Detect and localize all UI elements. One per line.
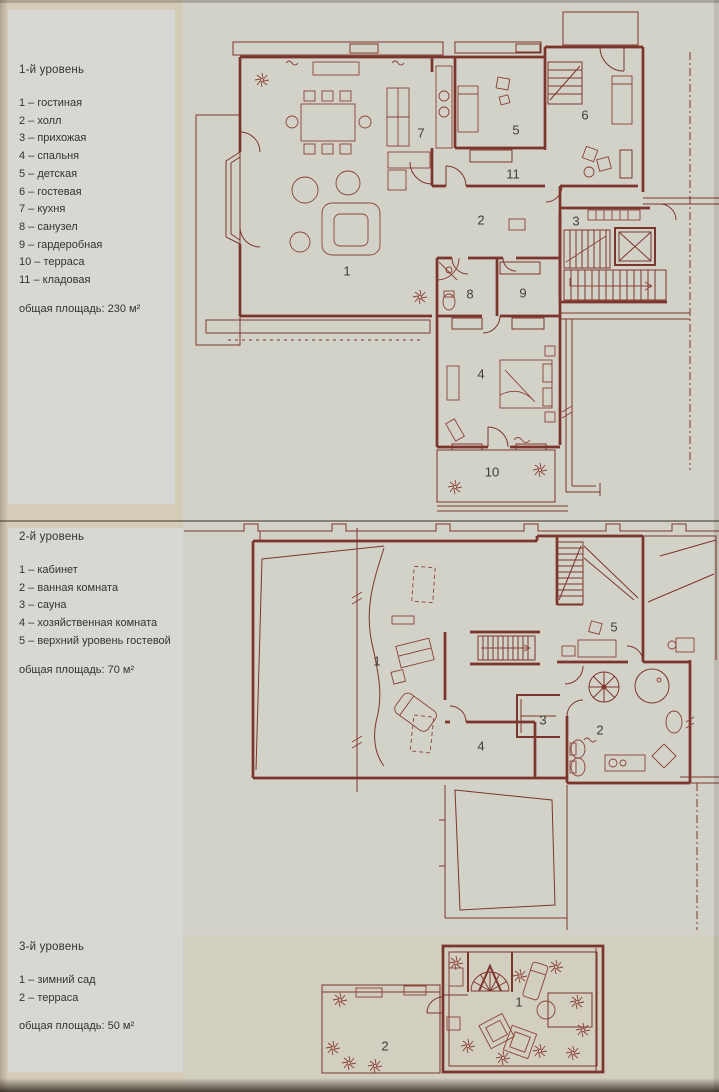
entrance-door [600, 47, 624, 71]
roof-outline [184, 524, 719, 541]
level-1-floor-plan [196, 12, 719, 511]
armchair [479, 1014, 514, 1049]
left-terrace-grid [196, 115, 240, 345]
room3-closet [588, 210, 640, 220]
bathroom2-fixtures [570, 669, 694, 776]
room-label: 11 [506, 167, 520, 182]
room-label: 6 [581, 108, 588, 123]
guest-upper-furniture [562, 621, 616, 657]
level-3-floor-plan [322, 946, 603, 1073]
door-arc [240, 132, 260, 247]
wardrobe [500, 262, 540, 274]
shower [437, 258, 459, 280]
plant-icon [449, 956, 463, 970]
bed [612, 76, 632, 124]
room6-furniture [582, 76, 632, 178]
bed [458, 86, 478, 132]
plant-icon [333, 993, 347, 1007]
room-label: 1 [343, 264, 350, 279]
armchair [336, 171, 360, 195]
spiral-stair-fan [468, 952, 512, 992]
hall-table [509, 219, 525, 230]
plant-icon [255, 73, 269, 87]
room-label: 4 [477, 739, 484, 754]
room-label: 5 [610, 620, 617, 635]
radiator-mark [514, 438, 530, 443]
living-room-furniture [255, 61, 427, 304]
elevator [615, 228, 655, 265]
void-slope-lines [256, 546, 384, 770]
plant-icon [448, 480, 462, 494]
level-2-floor-plan [184, 524, 719, 930]
room-label: 2 [381, 1039, 388, 1054]
plant-icon [326, 1041, 340, 1055]
room-label: 10 [485, 465, 499, 480]
plant-icon [368, 1059, 382, 1073]
lounge-chair [522, 961, 548, 1000]
bay-window [226, 152, 240, 244]
upper-stair [557, 542, 638, 605]
room-label: 2 [596, 723, 603, 738]
toilet [443, 294, 455, 310]
room-label: 4 [477, 367, 484, 382]
room-label: 2 [477, 213, 484, 228]
attic-room [643, 536, 716, 660]
page-edge-bottom [0, 1078, 719, 1092]
wardrobe [470, 150, 512, 162]
plant-icon [533, 463, 547, 477]
room-label: 9 [519, 286, 526, 301]
armchair [503, 1025, 536, 1058]
bathroom-fixtures [437, 258, 544, 329]
room-label: 1 [515, 995, 522, 1010]
mid-stair [445, 632, 540, 700]
sofa [322, 203, 380, 255]
roof-terrace-grid [563, 12, 638, 45]
room-label: 1 [373, 654, 380, 669]
sofa [578, 640, 616, 657]
room-label: 3 [572, 214, 579, 229]
dining-table [301, 104, 355, 141]
floor-plans-drawing [0, 0, 719, 1092]
garden-door [427, 995, 468, 1013]
floor-plan-page: 1-й уровень 1 – гостиная2 – холл3 – прих… [0, 0, 719, 1092]
study-furniture [385, 566, 439, 753]
bed [500, 360, 552, 408]
room-label: 7 [417, 126, 424, 141]
break-mark [562, 406, 572, 418]
round-table [537, 1001, 555, 1019]
wardrobe [620, 150, 632, 178]
chaise [392, 691, 438, 734]
bathtub [635, 669, 669, 703]
page-edge-top [0, 0, 719, 3]
plant-icon [342, 1056, 356, 1070]
sink [666, 711, 682, 733]
room-label: 8 [466, 287, 473, 302]
desk [396, 638, 434, 668]
armchair [292, 177, 318, 203]
bedroom-furniture [446, 346, 555, 450]
page-edge-left [0, 0, 8, 1092]
lower-extension [439, 785, 567, 930]
small-stair [548, 62, 582, 104]
page-edge-right [714, 0, 719, 1092]
plant-icon [413, 290, 427, 304]
room-label: 3 [539, 713, 546, 728]
top-terrace-hatch [233, 42, 443, 55]
spiral-staircase [589, 672, 619, 702]
room-label: 5 [512, 123, 519, 138]
